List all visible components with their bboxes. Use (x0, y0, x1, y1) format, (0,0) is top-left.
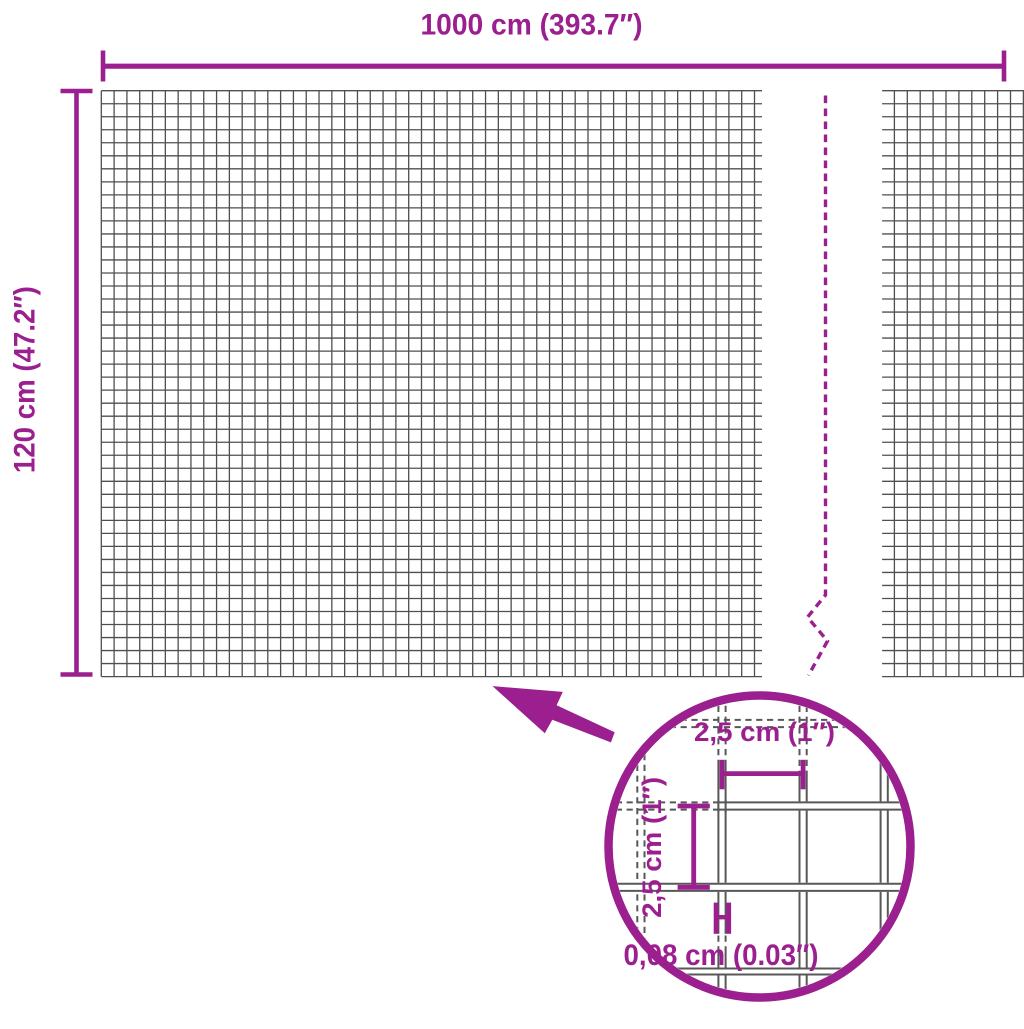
svg-text:0,08 cm (0.03″): 0,08 cm (0.03″) (624, 939, 819, 972)
svg-text:2,5 cm (1″): 2,5 cm (1″) (637, 777, 667, 918)
svg-text:120 cm (47.2″): 120 cm (47.2″) (9, 286, 42, 473)
svg-text:1000 cm (393.7″): 1000 cm (393.7″) (421, 8, 643, 41)
svg-text:2,5 cm (1″): 2,5 cm (1″) (694, 717, 835, 747)
